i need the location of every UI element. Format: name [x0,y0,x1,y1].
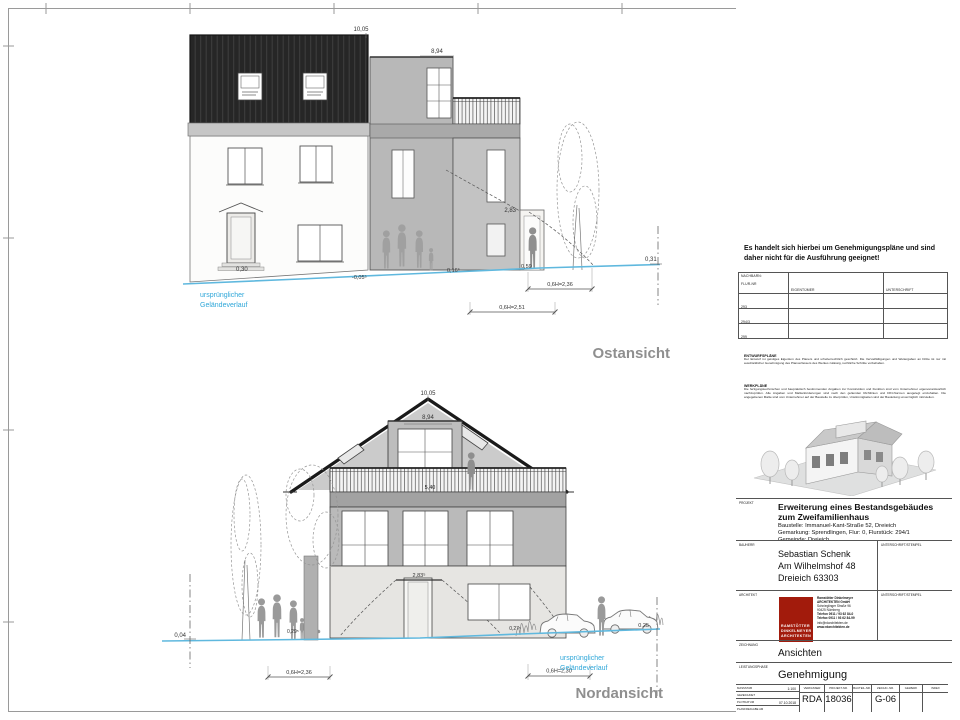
east-dark-roof [190,35,368,123]
east-level-a: -0,05⁵ [352,274,367,281]
neighbors-header-signature: UNTERSCHRIFT [884,273,947,293]
zeichnung-label: ZEICHNUNG [739,643,758,647]
east-lower-window [296,225,344,262]
north-tree-1 [231,475,261,640]
north-ridge-height-label: 10,05 [420,391,436,397]
east-roof-window-1 [238,73,262,100]
east-door-height-label: 2,83 [504,208,516,214]
project-title: Erweiterung eines Bestandsgebäudes zum Z… [778,503,946,522]
architect-logo: RAMSTÖTTER DINKELMEYER ARCHITEKTEN [779,597,813,642]
werkplaene-note: WERKPLÄNE Die fertigungstechnischen und … [744,384,946,400]
east-elevation: 10,05 8,94 2,83 0,30 -0,05⁵ 0,16⁵ 0,59 0… [183,27,670,362]
neighbors-table: NACHBARN: FLUR-NR EIGENTÜMER UNTERSCHRIF… [738,272,948,339]
plot-date: 07.10.2018 [779,701,796,705]
east-level-door: 0,30 [236,267,248,273]
north-terrain-label-1: ursprünglicher [560,655,605,662]
north-balcony-width-label: 5,40 [425,485,436,491]
projekt-label: PROJEKT [739,501,754,505]
north-view-title: Nordansicht [575,685,663,702]
north-ground-wall [330,566,566,638]
neighbor-row-signature [884,293,947,308]
east-extension-lower [453,138,520,270]
east-tower-window [427,68,451,118]
neighbor-row-flur: 299 [739,323,789,338]
east-roof-window-2 [303,73,327,100]
north-door-height-label: 2,83⁵ [413,572,426,579]
north-car-person [598,596,606,635]
meta-table: MASSSTAB1:100 GEZEICHNET PLOTDATUM07.10.… [736,684,952,712]
neighbors-header-owner: EIGENTÜMER [789,273,884,293]
client-name: Sebastian Schenk [778,549,851,561]
north-flat-height-label: 8,94 [422,415,434,421]
north-floor-band [330,492,566,507]
east-dim-a [526,268,595,292]
meta-col-gewerk: GEWERK [900,685,923,712]
phase-name: Genehmigung [778,669,847,681]
meta-col-index: INDEX [923,685,948,712]
east-level-b: 0,16⁵ [447,267,460,274]
architekt-section: ARCHITEKT RAMSTÖTTER DINKELMEYER ARCHITE… [736,590,952,640]
bauherr-label: BAUHERR [739,543,755,547]
leistungsphase-section: LEISTUNGSPHASE Genehmigung [736,662,952,684]
east-level-c: 0,59 [521,264,532,270]
neighbor-row-flur: 294/3 [739,308,789,323]
architect-contact: Ramstötter Dinkelmeyer ARCHITEKTEN GmbH … [817,596,875,629]
meta-col-verfasser: VERFASSERRDA [800,685,825,712]
north-main-windows [342,511,513,566]
east-terrain-label-2: Geländeverlauf [200,302,248,309]
north-dim-a-label: 0,6H=2,36 [286,670,312,676]
projekt-section: PROJEKT Erweiterung eines Bestandsgebäud… [736,498,952,540]
east-dim-b-label: 0,6H=2,51 [499,305,525,311]
east-terrain-label-1: ursprünglicher [200,292,245,299]
north-terrain-label-2: Geländeverlauf [560,665,608,672]
meta-col-zeichnnr: ZEICHN.-NR.G-06 [872,685,900,712]
east-slot-window-2 [487,150,505,202]
north-balcony-railing [330,468,566,492]
north-door [404,578,432,638]
east-ridge-height-label: 10,05 [353,27,369,33]
meta-left-rows: MASSSTAB1:100 GEZEICHNET PLOTDATUM07.10.… [736,685,800,712]
plan-sheet: 10,05 8,94 2,83 0,30 -0,05⁵ 0,16⁵ 0,59 0… [0,0,960,720]
north-level-b: 0,27⁵ [509,626,521,632]
scale-value: 1:100 [788,687,797,691]
zeichnung-section: ZEICHNUNG Ansichten [736,640,952,662]
drawing-name: Ansichten [778,648,822,659]
bauherr-signature-cell: UNTERSCHRIFT/STEMPEL [877,541,952,590]
architekt-signature-cell: UNTERSCHRIFT/STEMPEL [877,591,952,640]
east-dim-a-label: 0,6H=2,36 [547,282,573,288]
neighbor-row-signature [884,308,947,323]
north-ground-window [468,584,530,620]
east-lower-window-2 [487,224,505,256]
title-block: Es handelt sich hierbei um Genehmigungsp… [736,8,952,712]
meta-col-projektnr: PROJEKT-NR.18036 [825,685,853,712]
architekt-label: ARCHITEKT [739,593,757,597]
approval-notice: Es handelt sich hierbei um Genehmigungsp… [744,244,946,264]
north-level-right: 0,25 [638,623,649,629]
meta-col-bauteilnr: BAUTEIL-NR. [853,685,872,712]
meta-columns: VERFASSERRDA PROJEKT-NR.18036 BAUTEIL-NR… [800,685,948,712]
east-floor-band [370,124,520,138]
neighbor-row-signature [884,323,947,338]
leistungsphase-label: LEISTUNGSPHASE [739,665,768,669]
neighbor-row-flur: 293 [739,293,789,308]
bauherr-section: BAUHERR Sebastian Schenk Am Wilhelmshof … [736,540,952,590]
north-level-left: 0,04 [174,633,186,639]
neighbor-row-owner [789,308,884,323]
east-flat-height-label: 8,94 [431,49,443,55]
neighbor-row-owner [789,323,884,338]
north-level-a: 0,29⁵ [287,629,299,635]
east-eaves-band [188,123,370,136]
client-street: Am Wilhelmshof 48 [778,561,856,573]
east-balcony-railing [453,98,520,124]
neighbor-row-owner [789,293,884,308]
east-tree [557,122,599,270]
east-view-title: Ostansicht [592,345,670,362]
project-3d-preview [740,414,948,496]
east-level-right: 0,31 [645,257,657,263]
north-elevation: 10,05 8,94 5,40 2,83⁵ 0,04 0,29⁵ 0,27⁵ 0… [162,391,663,702]
entwurfsplaene-note: ENTWURFSPLÄNE Der Entwurf ist geistiges … [744,354,946,366]
client-city: Dreieich 63303 [778,573,839,585]
neighbors-header-flur: NACHBARN: FLUR-NR [739,273,789,293]
